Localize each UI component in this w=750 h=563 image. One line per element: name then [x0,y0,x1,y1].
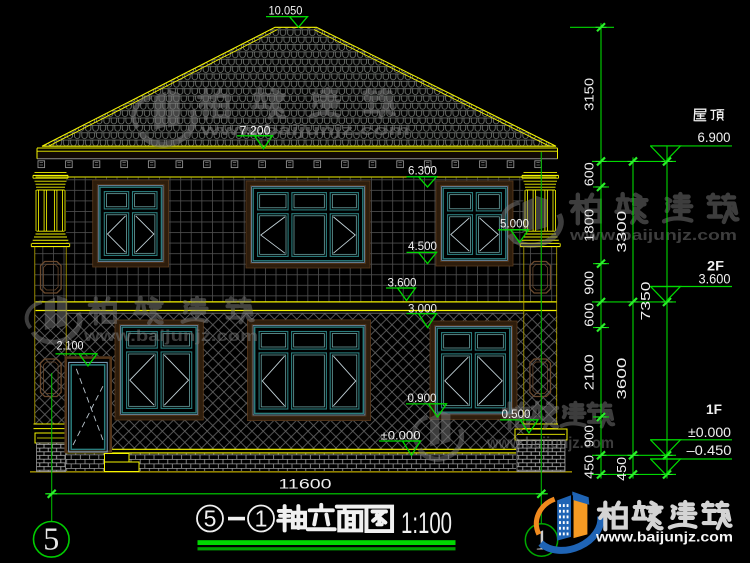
svg-text:11600: 11600 [279,476,332,492]
svg-text:5: 5 [204,506,217,532]
svg-text:4.500: 4.500 [408,239,437,253]
svg-text:–0.450: –0.450 [687,443,732,458]
svg-text:450: 450 [615,457,629,481]
svg-text:6.900: 6.900 [698,130,731,145]
svg-text:3300: 3300 [615,211,629,253]
svg-text:10.050: 10.050 [269,4,303,18]
svg-text:±0.000: ±0.000 [688,425,731,440]
svg-text:6.300: 6.300 [408,164,437,178]
svg-text:600: 600 [583,303,597,327]
svg-text:2100: 2100 [583,354,597,390]
svg-text:0.900: 0.900 [408,391,437,405]
svg-text:3.600: 3.600 [699,272,731,287]
svg-text:3600: 3600 [615,358,629,400]
svg-text:5.000: 5.000 [500,217,529,231]
svg-text:450: 450 [583,455,597,479]
svg-text:2.100: 2.100 [57,338,84,352]
svg-text:1800: 1800 [583,209,597,242]
svg-text:600: 600 [583,162,597,186]
svg-text:1F: 1F [706,402,722,417]
svg-text:www.baijunjz.com: www.baijunjz.com [199,122,410,139]
svg-text:±0.000: ±0.000 [381,428,421,442]
svg-text:1: 1 [255,506,268,532]
svg-text:3150: 3150 [583,78,597,111]
svg-text:5: 5 [43,521,59,557]
svg-text:3.600: 3.600 [388,275,417,289]
svg-text:1:100: 1:100 [401,507,452,540]
svg-text:0.500: 0.500 [502,407,531,421]
svg-text:900: 900 [583,271,597,295]
svg-text:900: 900 [583,425,597,447]
svg-text:www.baijunjz.com: www.baijunjz.com [83,328,258,345]
svg-text:www.baijunjz.com: www.baijunjz.com [595,530,733,545]
